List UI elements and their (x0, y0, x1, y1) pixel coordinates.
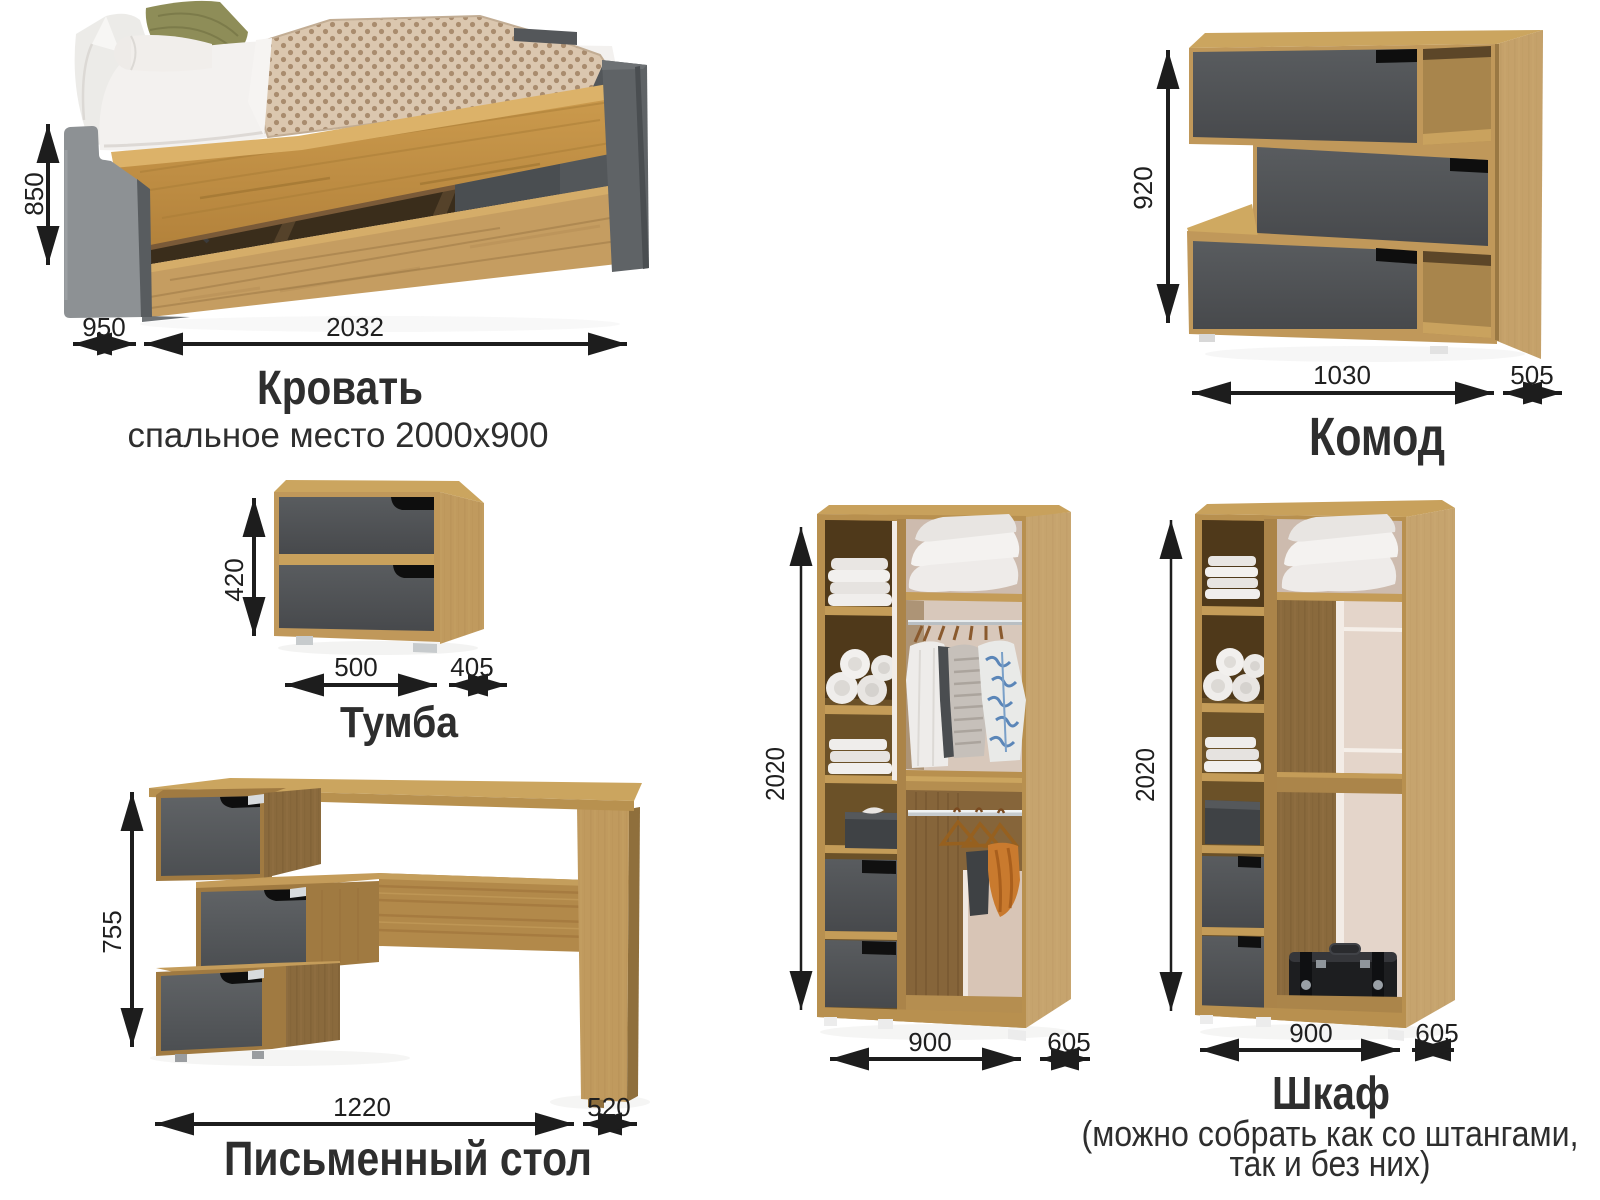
svg-text:2032: 2032 (326, 312, 384, 342)
svg-text:Комод: Комод (1309, 407, 1445, 467)
svg-text:1030: 1030 (1313, 360, 1371, 390)
svg-text:2020: 2020 (1130, 748, 1160, 802)
svg-text:500: 500 (334, 652, 377, 682)
svg-text:405: 405 (450, 652, 493, 682)
svg-text:спальное место 2000х900: спальное место 2000х900 (128, 416, 549, 455)
svg-text:605: 605 (1047, 1027, 1090, 1057)
svg-text:Кровать: Кровать (257, 362, 423, 415)
svg-text:605: 605 (1415, 1018, 1458, 1048)
svg-text:Тумба: Тумба (340, 698, 458, 747)
svg-text:950: 950 (82, 312, 125, 342)
svg-text:520: 520 (587, 1092, 630, 1122)
svg-text:850: 850 (19, 172, 49, 215)
svg-text:1220: 1220 (333, 1092, 391, 1122)
svg-text:Письменный стол: Письменный стол (224, 1133, 592, 1186)
svg-text:420: 420 (219, 558, 249, 601)
svg-text:755: 755 (97, 910, 127, 953)
svg-text:так и без них): так и без них) (1230, 1143, 1431, 1184)
svg-text:2020: 2020 (760, 747, 790, 801)
svg-text:Шкаф: Шкаф (1272, 1067, 1390, 1119)
svg-text:900: 900 (1289, 1018, 1332, 1048)
svg-text:505: 505 (1510, 360, 1553, 390)
svg-text:920: 920 (1128, 166, 1158, 209)
svg-text:900: 900 (908, 1027, 951, 1057)
